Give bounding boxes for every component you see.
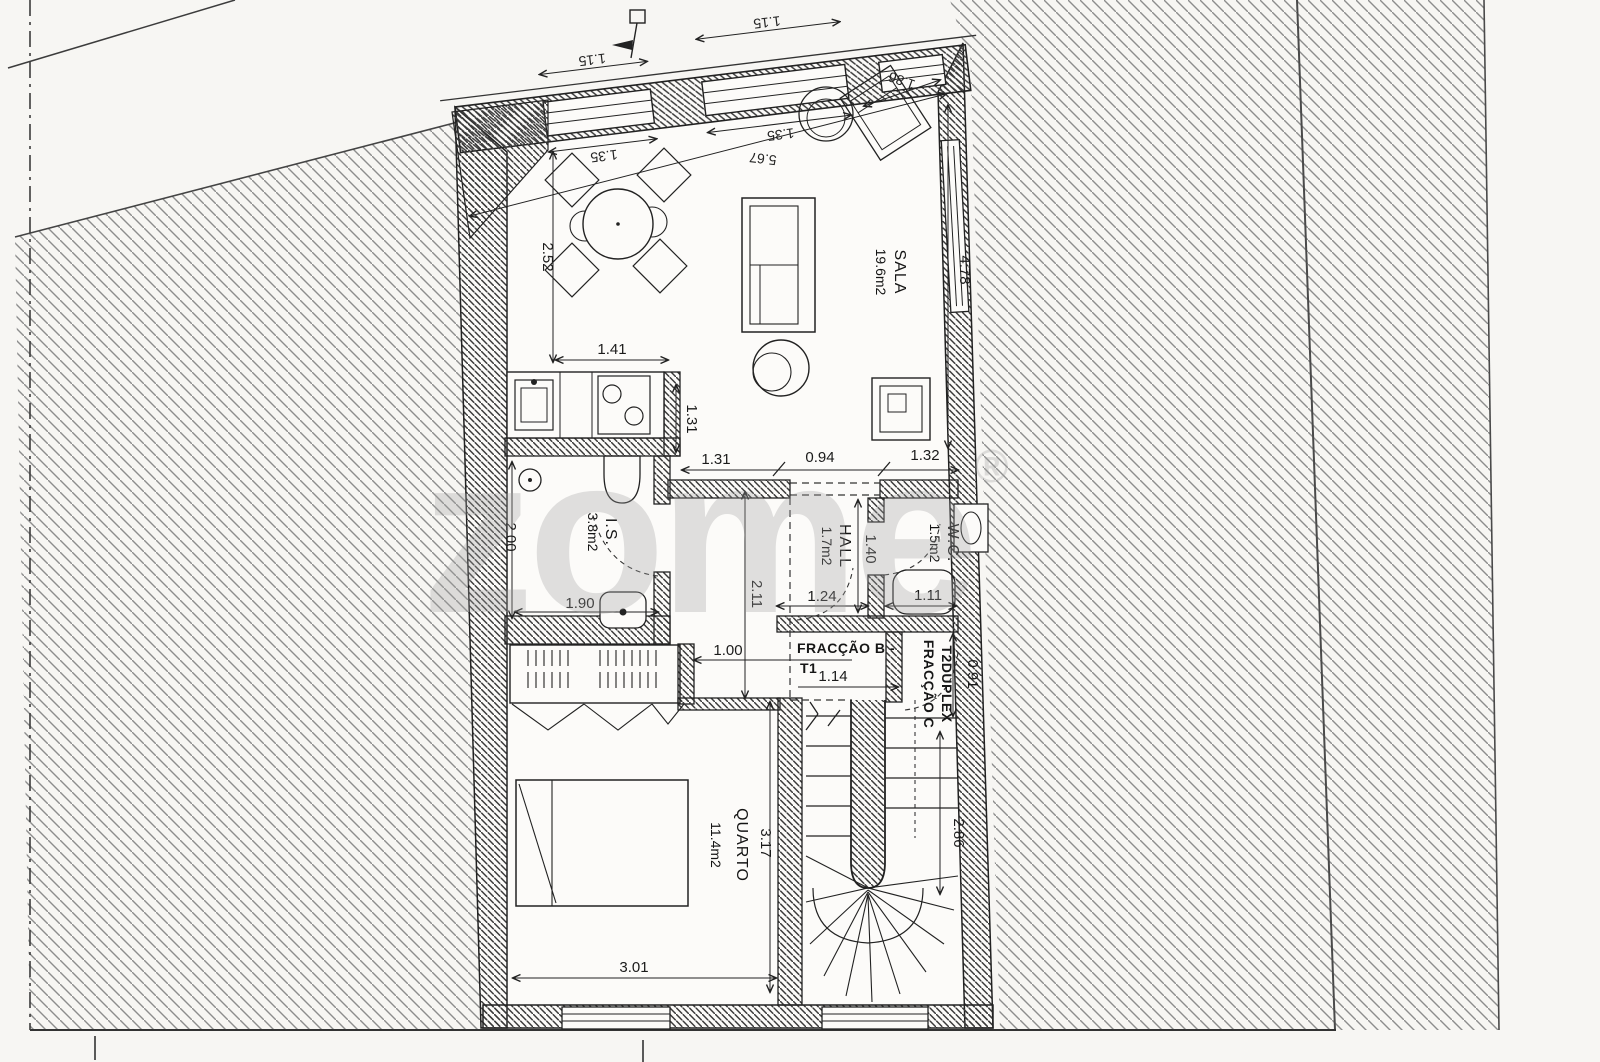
site-hatch-right	[950, 0, 1499, 1030]
site-hatch-left	[15, 122, 484, 1030]
dim-135-a: 1.35	[589, 147, 618, 166]
stair-spine-wall	[851, 700, 885, 888]
dim-135-b: 1.35	[766, 125, 795, 144]
wall-stair-left	[778, 698, 802, 1005]
dim-091: 0.91	[964, 659, 981, 688]
dim-252: 2.52	[539, 242, 556, 271]
wall-quarto-north	[678, 698, 780, 710]
room-area-quarto: 11.4m2	[708, 822, 724, 868]
scanned-floor-plan-page: 1.15 1.15 1.35 1.35	[0, 0, 1600, 1062]
window-bottom-2	[822, 1007, 928, 1029]
dim-115-b: 1.15	[752, 13, 781, 32]
dim-114: 1.14	[818, 668, 847, 685]
floor-plan-canvas: 1.15 1.15 1.35 1.35	[0, 0, 1600, 1062]
unit-label-fraccao-b-t1: T1	[800, 660, 817, 676]
room-label-quarto: QUARTO	[733, 808, 750, 882]
dim-567: 5.67	[748, 149, 777, 168]
dim-478: 4.78	[956, 255, 973, 284]
window-bottom-1	[562, 1007, 670, 1029]
dim-141: 1.41	[597, 341, 626, 358]
dim-301: 3.01	[619, 959, 648, 976]
room-label-sala: SALA	[891, 250, 908, 295]
dim-286: 2.86	[950, 818, 967, 847]
watermark: zome®	[421, 408, 1008, 660]
dim-115-a: 1.15	[578, 50, 607, 69]
dim-317: 3.17	[757, 828, 774, 857]
room-area-sala: 19.6m2	[873, 249, 889, 296]
